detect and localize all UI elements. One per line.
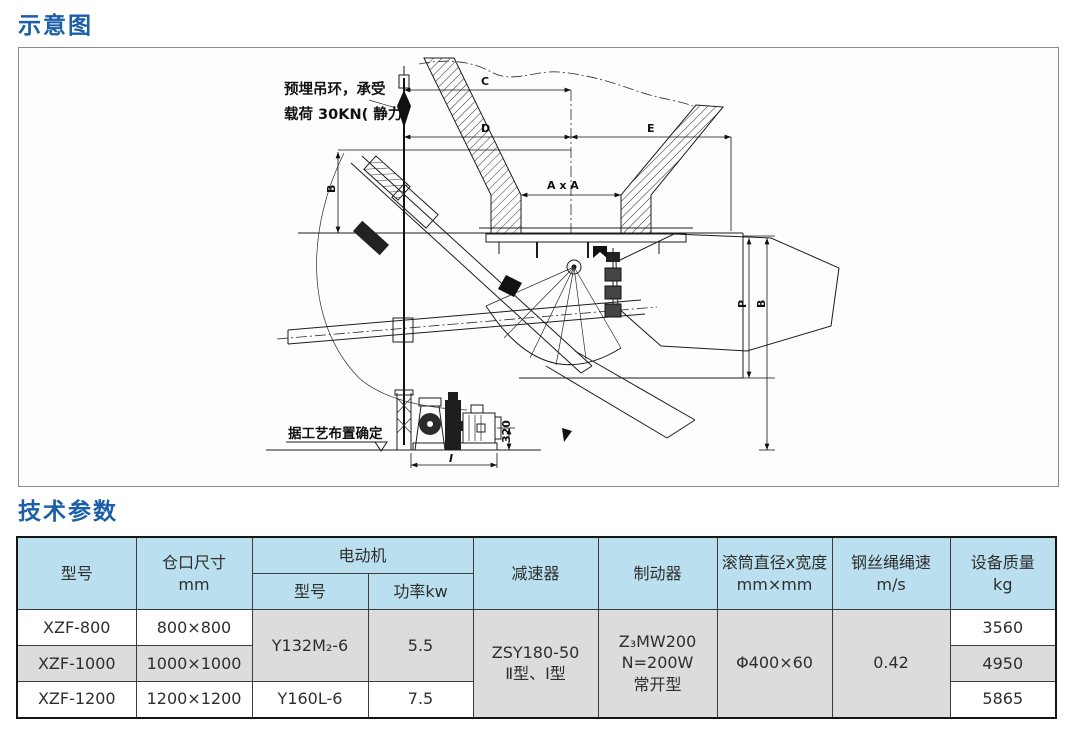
- cell-mass: 4950: [950, 646, 1056, 682]
- technical-parameters-table: 型号 仓口尺寸 mm 电动机 减速器 制动器 滚筒直径x宽度 mm×mm 钢丝绳…: [16, 536, 1057, 719]
- cell-brake: Z₃MW200 N=200W 常开型: [598, 610, 717, 718]
- col-header-model: 型号: [17, 537, 136, 610]
- support-beam: [277, 300, 657, 344]
- counterweight: [605, 248, 621, 317]
- cell-mass: 3560: [950, 610, 1056, 646]
- col-header-rope-speed: 钢丝绳绳速 m/s: [832, 537, 950, 610]
- col-header-mass: 设备质量 kg: [950, 537, 1056, 610]
- col-header-drum: 滚筒直径x宽度 mm×mm: [717, 537, 832, 610]
- cell-rope-speed: 0.42: [832, 610, 950, 718]
- col-header-motor: 电动机: [252, 537, 473, 574]
- dim-label-i: I: [449, 452, 453, 465]
- table-row: XZF-800 800×800 Y132M₂-6 5.5 ZSY180-50 Ⅱ…: [17, 610, 1056, 646]
- spec-sheet-page: 示意图: [0, 0, 1073, 729]
- dim-label-c: C: [481, 75, 489, 88]
- dim-label-320: 320: [500, 420, 513, 443]
- hopper-left-wall: [424, 58, 521, 234]
- col-header-brake: 制动器: [598, 537, 717, 610]
- gate-plate: [616, 234, 839, 351]
- schematic-diagram-frame: C D E B A x A P B 320: [18, 47, 1059, 487]
- section-title-schematic: 示意图: [18, 6, 93, 40]
- cell-motor-power: 7.5: [368, 682, 473, 718]
- annotation-ground: 据工艺布置确定: [288, 425, 383, 442]
- dim-label-b-right: B: [755, 300, 768, 308]
- cell-opening: 1200×1200: [136, 682, 252, 718]
- col-header-opening-size: 仓口尺寸 mm: [136, 537, 252, 610]
- cell-reducer: ZSY180-50 Ⅱ型、Ⅰ型: [473, 610, 598, 718]
- winch-unit: [395, 390, 501, 450]
- dim-label-axa: A x A: [547, 179, 579, 192]
- cell-motor-model: Y160L-6: [252, 682, 368, 718]
- cell-opening: 800×800: [136, 610, 252, 646]
- cell-model: XZF-1200: [17, 682, 136, 718]
- cell-motor-model: Y132M₂-6: [252, 610, 368, 682]
- section-title-parameters: 技术参数: [18, 492, 118, 526]
- annotation-lifting-ring-line2: 载荷 30KN( 静力): [284, 105, 409, 123]
- cell-motor-power: 5.5: [368, 610, 473, 682]
- annotation-lifting-ring-line1: 预埋吊环，承受: [284, 80, 386, 98]
- cell-mass: 5865: [950, 682, 1056, 718]
- col-header-motor-model: 型号: [252, 574, 368, 610]
- dim-label-p: P: [736, 300, 749, 308]
- cell-model: XZF-1000: [17, 646, 136, 682]
- schematic-drawing: C D E B A x A P B 320: [19, 48, 1058, 486]
- col-header-reducer: 减速器: [473, 537, 598, 610]
- hopper-right-wall: [621, 105, 723, 234]
- cell-opening: 1000×1000: [136, 646, 252, 682]
- cell-model: XZF-800: [17, 610, 136, 646]
- dim-label-e: E: [647, 122, 655, 135]
- col-header-motor-power: 功率kw: [368, 574, 473, 610]
- dim-label-d: D: [481, 122, 490, 135]
- dim-label-b-left: B: [325, 185, 338, 193]
- cell-drum: Φ400×60: [717, 610, 832, 718]
